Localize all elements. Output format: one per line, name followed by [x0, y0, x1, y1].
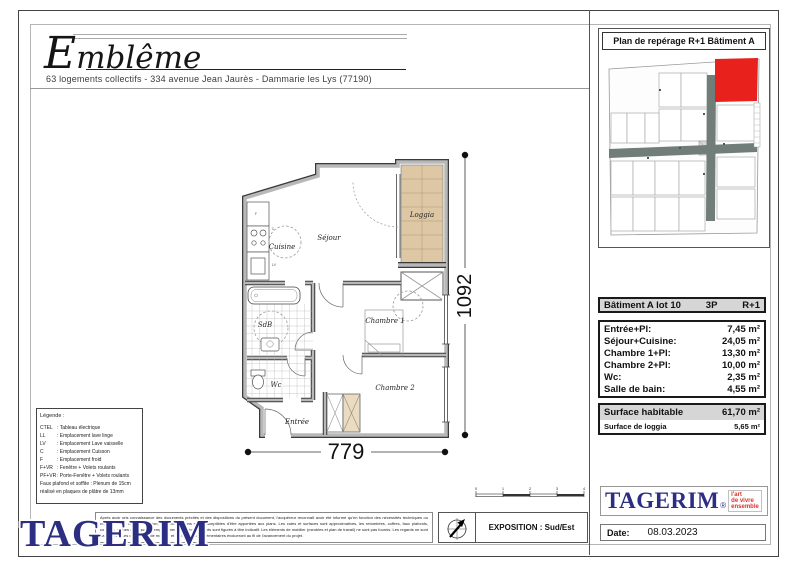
legend-item: C: Emplacement Cuisson	[40, 448, 139, 456]
highlighted-unit	[715, 58, 758, 102]
scale-tick: 0	[475, 486, 478, 491]
locator-panel: Plan de repérage R+1 Bâtiment A	[598, 28, 770, 248]
appliance-label-lv: LV	[272, 263, 277, 267]
entry-opening	[265, 431, 291, 439]
exposition-label: EXPOSITION : Sud/Est	[476, 513, 587, 542]
table-row: Chambre 1+Pl:13,30 m²	[604, 348, 760, 359]
scale-tick: 1	[502, 486, 505, 491]
legend-item: F: Emplacement froid	[40, 456, 139, 464]
room-label-entree: Entrée	[284, 418, 309, 426]
floor-plan: F C LV	[225, 132, 480, 467]
room-label-chambre2: Chambre 2	[375, 384, 415, 392]
kitchen-appliances	[247, 202, 269, 280]
plan-sheet: Emblême 63 logements collectifs - 334 av…	[0, 0, 800, 566]
svg-text:779: 779	[328, 439, 365, 464]
level-label: R+1	[742, 300, 760, 311]
date-value: 08.03.2023	[648, 527, 698, 538]
brand-logo: TAGERIM	[605, 488, 719, 514]
dimension-width: 779	[245, 439, 448, 464]
room-label-loggia: Loggia	[409, 211, 434, 219]
room-label-chambre1: Chambre 1	[365, 317, 404, 325]
legend-panel: Légende : CTEL: Tableau électrique LL: E…	[36, 408, 143, 504]
corridor-v	[706, 75, 716, 221]
date-panel: Date: 08.03.2023	[600, 524, 766, 541]
table-row: Chambre 2+Pl:10,00 m²	[604, 360, 760, 371]
project-logo: Emblême	[44, 28, 201, 79]
compass-cell	[439, 513, 476, 542]
lot-label: Bâtiment A lot 10	[604, 300, 681, 311]
bathtub	[248, 287, 300, 304]
surface-loggia-row: Surface de loggia 5,65 m²	[600, 420, 764, 433]
date-label: Date:	[607, 528, 630, 538]
room-label-sdb: SdB	[258, 321, 272, 329]
surface-habitable-row: Surface habitable 61,70 m²	[600, 405, 764, 420]
room-label-wc: Wc	[270, 381, 281, 389]
scale-tick: 3	[556, 486, 559, 491]
brand-panel: TAGERIM ® l'art de vivre ensemble	[600, 486, 768, 516]
brand-tagline: l'art de vivre ensemble	[728, 490, 762, 513]
dimension-height: 1092	[454, 152, 476, 438]
legend-note: réalisé en plaques de plâtre de 13mm	[40, 488, 139, 496]
compass-icon	[445, 515, 469, 541]
surface-table-body: Entrée+Pl:7,45 m² Séjour+Cuisine:24,05 m…	[598, 320, 766, 398]
tagerim-watermark: TAGERIM	[20, 512, 210, 556]
site-plan	[603, 53, 765, 239]
table-row: Séjour+Cuisine:24,05 m²	[604, 336, 760, 347]
room-label-sejour: Séjour	[317, 234, 341, 242]
column-divider	[589, 10, 590, 555]
registered-mark: ®	[720, 501, 726, 510]
table-row: Salle de bain:4,55 m²	[604, 384, 760, 395]
legend-item: LV: Emplacement Lave vaisselle	[40, 440, 139, 448]
scale-tick: 2	[529, 486, 532, 491]
appliance-label-f: F	[255, 212, 257, 216]
washbasin	[261, 338, 279, 351]
closet	[327, 394, 360, 432]
room-label-cuisine: Cuisine	[269, 243, 296, 251]
surface-table-header: Bâtiment A lot 10 3P R+1	[598, 297, 766, 313]
table-row: Wc:2,35 m²	[604, 372, 760, 383]
svg-text:1092: 1092	[454, 274, 476, 319]
legend-item: F+VR: Fenêtre + Volets roulants	[40, 464, 139, 472]
type-label: 3P	[706, 300, 718, 311]
scale-bar: 0 1 2 3 4	[474, 486, 588, 500]
legend-item: CTEL: Tableau électrique	[40, 424, 139, 432]
orientation-panel: EXPOSITION : Sud/Est	[438, 512, 588, 543]
table-row: Entrée+Pl:7,45 m²	[604, 324, 760, 335]
legend-item: PF+VR: Porte-Fenêtre + Volets roulants	[40, 472, 139, 480]
legend-title: Légende :	[40, 413, 139, 419]
scale-tick: 4	[583, 486, 586, 491]
legend-item: LL: Emplacement lave linge	[40, 432, 139, 440]
header-rule	[30, 88, 589, 89]
locator-title: Plan de repérage R+1 Bâtiment A	[602, 32, 766, 50]
legend-note: Faux plafond et soffite : Plenum de 15cm	[40, 480, 139, 488]
surface-table-summary: Surface habitable 61,70 m² Surface de lo…	[598, 403, 766, 435]
